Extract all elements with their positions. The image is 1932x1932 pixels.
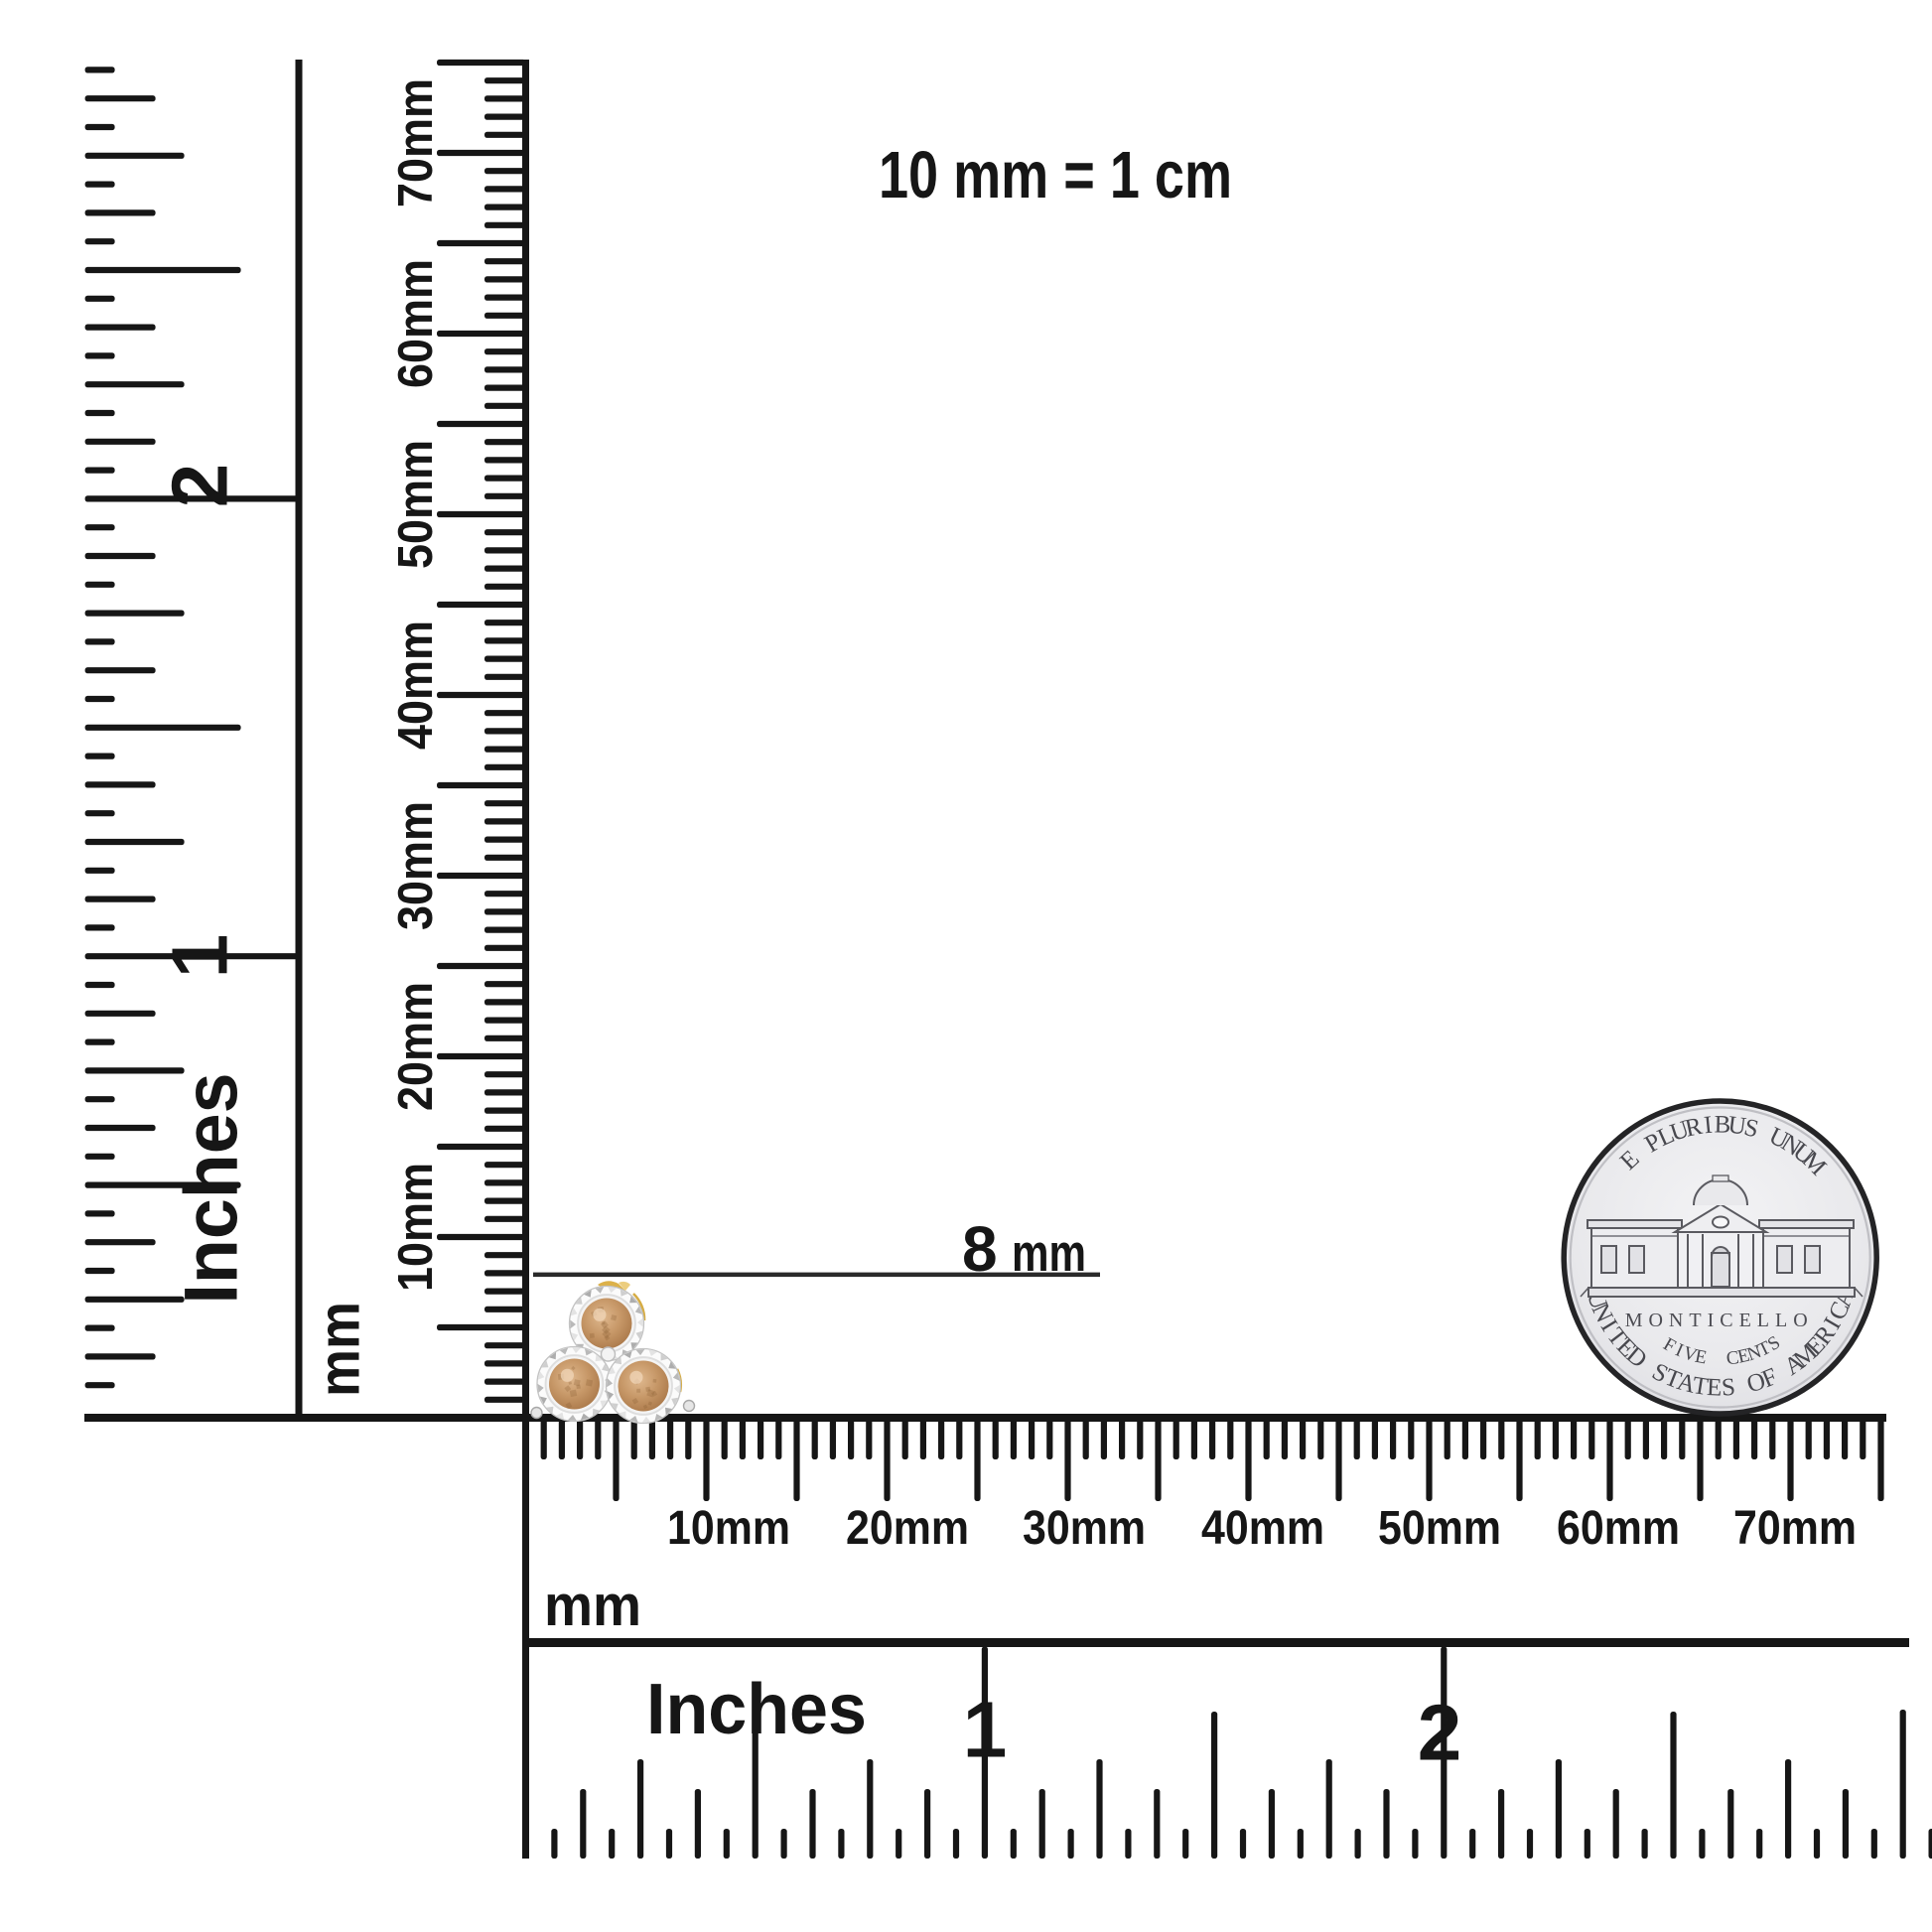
svg-text:50mm: 50mm: [1378, 1502, 1501, 1555]
svg-text:20mm: 20mm: [389, 982, 443, 1111]
svg-text:60mm: 60mm: [389, 259, 443, 388]
svg-text:60mm: 60mm: [1557, 1502, 1680, 1555]
svg-text:10mm: 10mm: [667, 1502, 790, 1555]
svg-text:50mm: 50mm: [389, 440, 443, 569]
svg-text:40mm: 40mm: [1201, 1502, 1324, 1555]
svg-text:40mm: 40mm: [389, 621, 443, 750]
svg-text:1: 1: [963, 1686, 1008, 1774]
svg-text:1: 1: [156, 934, 244, 979]
svg-text:Inches: Inches: [170, 1073, 254, 1305]
svg-text:30mm: 30mm: [389, 801, 443, 930]
svg-text:MONTICELLO: MONTICELLO: [1625, 1310, 1814, 1331]
svg-text:10 mm = 1 cm: 10 mm = 1 cm: [879, 138, 1232, 212]
svg-text:mm: mm: [544, 1574, 641, 1638]
svg-text:10mm: 10mm: [389, 1163, 443, 1292]
svg-text:70mm: 70mm: [389, 78, 443, 207]
svg-text:2: 2: [156, 464, 244, 508]
svg-text:mm: mm: [308, 1302, 372, 1397]
svg-text:S: S: [1721, 1374, 1736, 1402]
svg-text:30mm: 30mm: [1023, 1502, 1146, 1555]
svg-text:70mm: 70mm: [1733, 1502, 1857, 1555]
svg-text:8: 8: [962, 1213, 998, 1285]
svg-text:mm: mm: [1012, 1224, 1086, 1283]
svg-text:Inches: Inches: [646, 1670, 867, 1749]
svg-text:2: 2: [1418, 1689, 1462, 1777]
svg-text:20mm: 20mm: [846, 1502, 969, 1555]
